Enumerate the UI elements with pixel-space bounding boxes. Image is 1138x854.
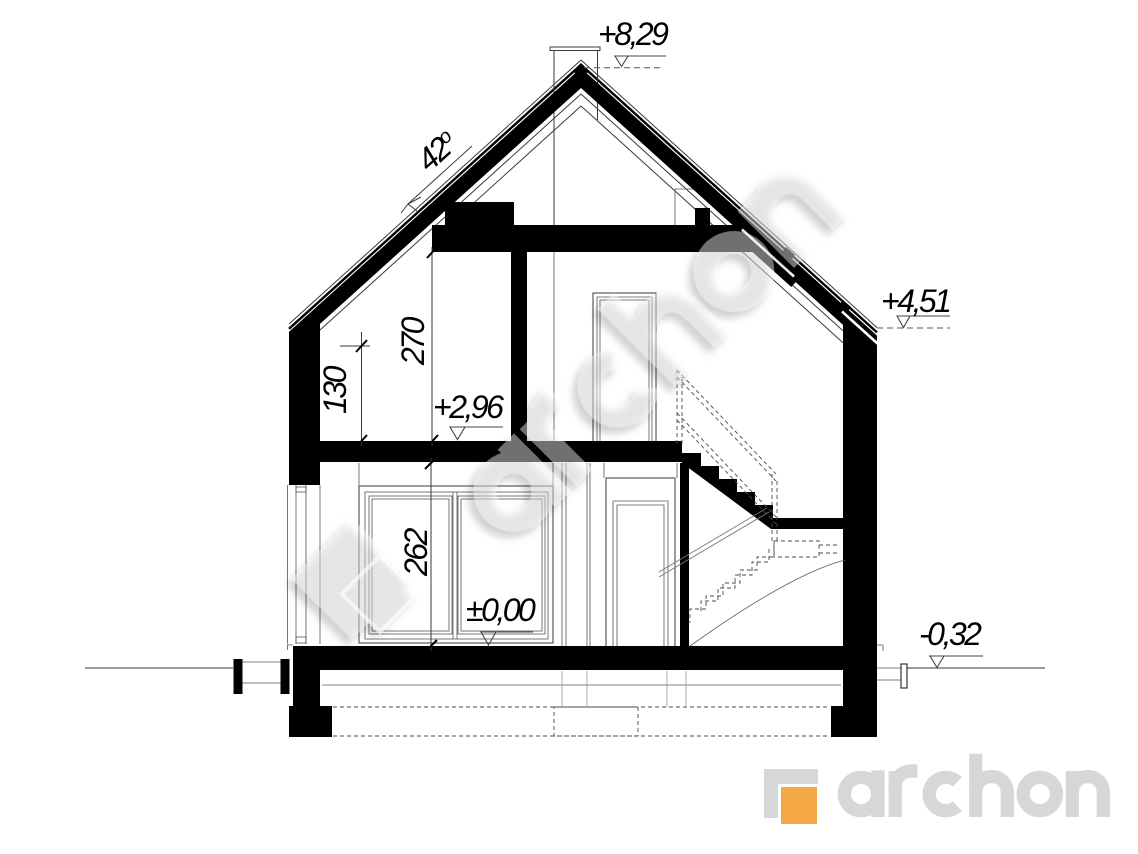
svg-text:±0,00: ±0,00 (466, 592, 536, 628)
svg-text:+8,29: +8,29 (598, 16, 669, 52)
svg-text:+2,96: +2,96 (433, 389, 504, 425)
svg-text:-0,32: -0,32 (919, 616, 982, 652)
svg-text:130: 130 (317, 365, 353, 414)
svg-text:262: 262 (398, 527, 434, 577)
svg-text:+4,51: +4,51 (881, 283, 950, 319)
svg-text:270: 270 (395, 316, 431, 366)
